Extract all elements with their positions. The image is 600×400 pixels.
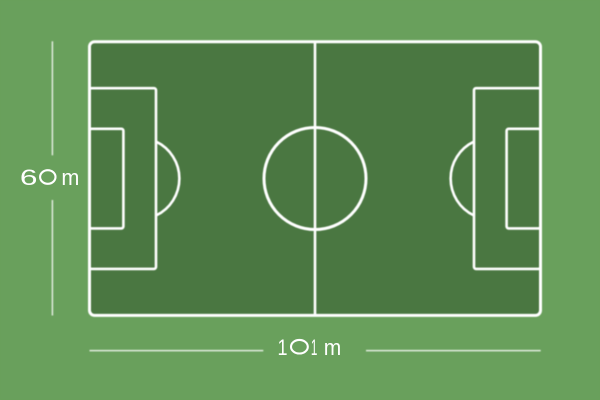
svg-text:m: m (61, 165, 79, 190)
svg-text:6: 6 (20, 165, 38, 190)
svg-text:1: 1 (278, 335, 288, 360)
svg-text:m: m (324, 335, 342, 360)
svg-text:1: 1 (311, 335, 318, 360)
